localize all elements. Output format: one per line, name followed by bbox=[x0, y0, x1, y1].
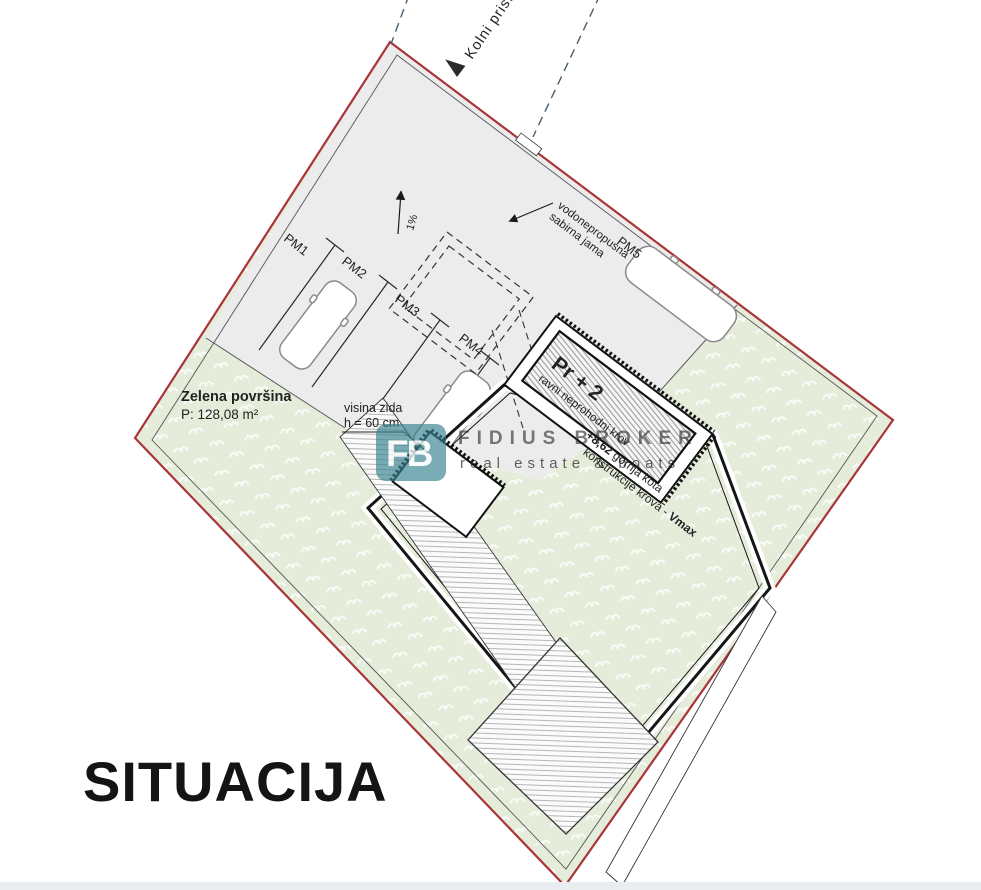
green-area-value: P: 128,08 m² bbox=[181, 407, 259, 422]
site-plan-drawing: Kolni pristup 1% bbox=[0, 0, 981, 890]
page-title: SITUACIJA bbox=[83, 750, 388, 813]
watermark-tagline: real estate & boats bbox=[460, 455, 680, 472]
access-arrow-icon bbox=[441, 54, 465, 77]
road-dashed-line-right bbox=[533, 0, 600, 137]
bottom-edge-bar bbox=[0, 882, 981, 890]
green-area-name: Zelena površina bbox=[181, 389, 292, 405]
watermark-brand-name: FIDIUS BROKER bbox=[458, 428, 699, 449]
watermark-logo-monogram: FB bbox=[386, 433, 433, 474]
road-dashed-line-left bbox=[391, 0, 409, 44]
wall-label-line1: visina zida bbox=[344, 401, 402, 415]
access-road-label: Kolni pristup bbox=[462, 0, 527, 62]
